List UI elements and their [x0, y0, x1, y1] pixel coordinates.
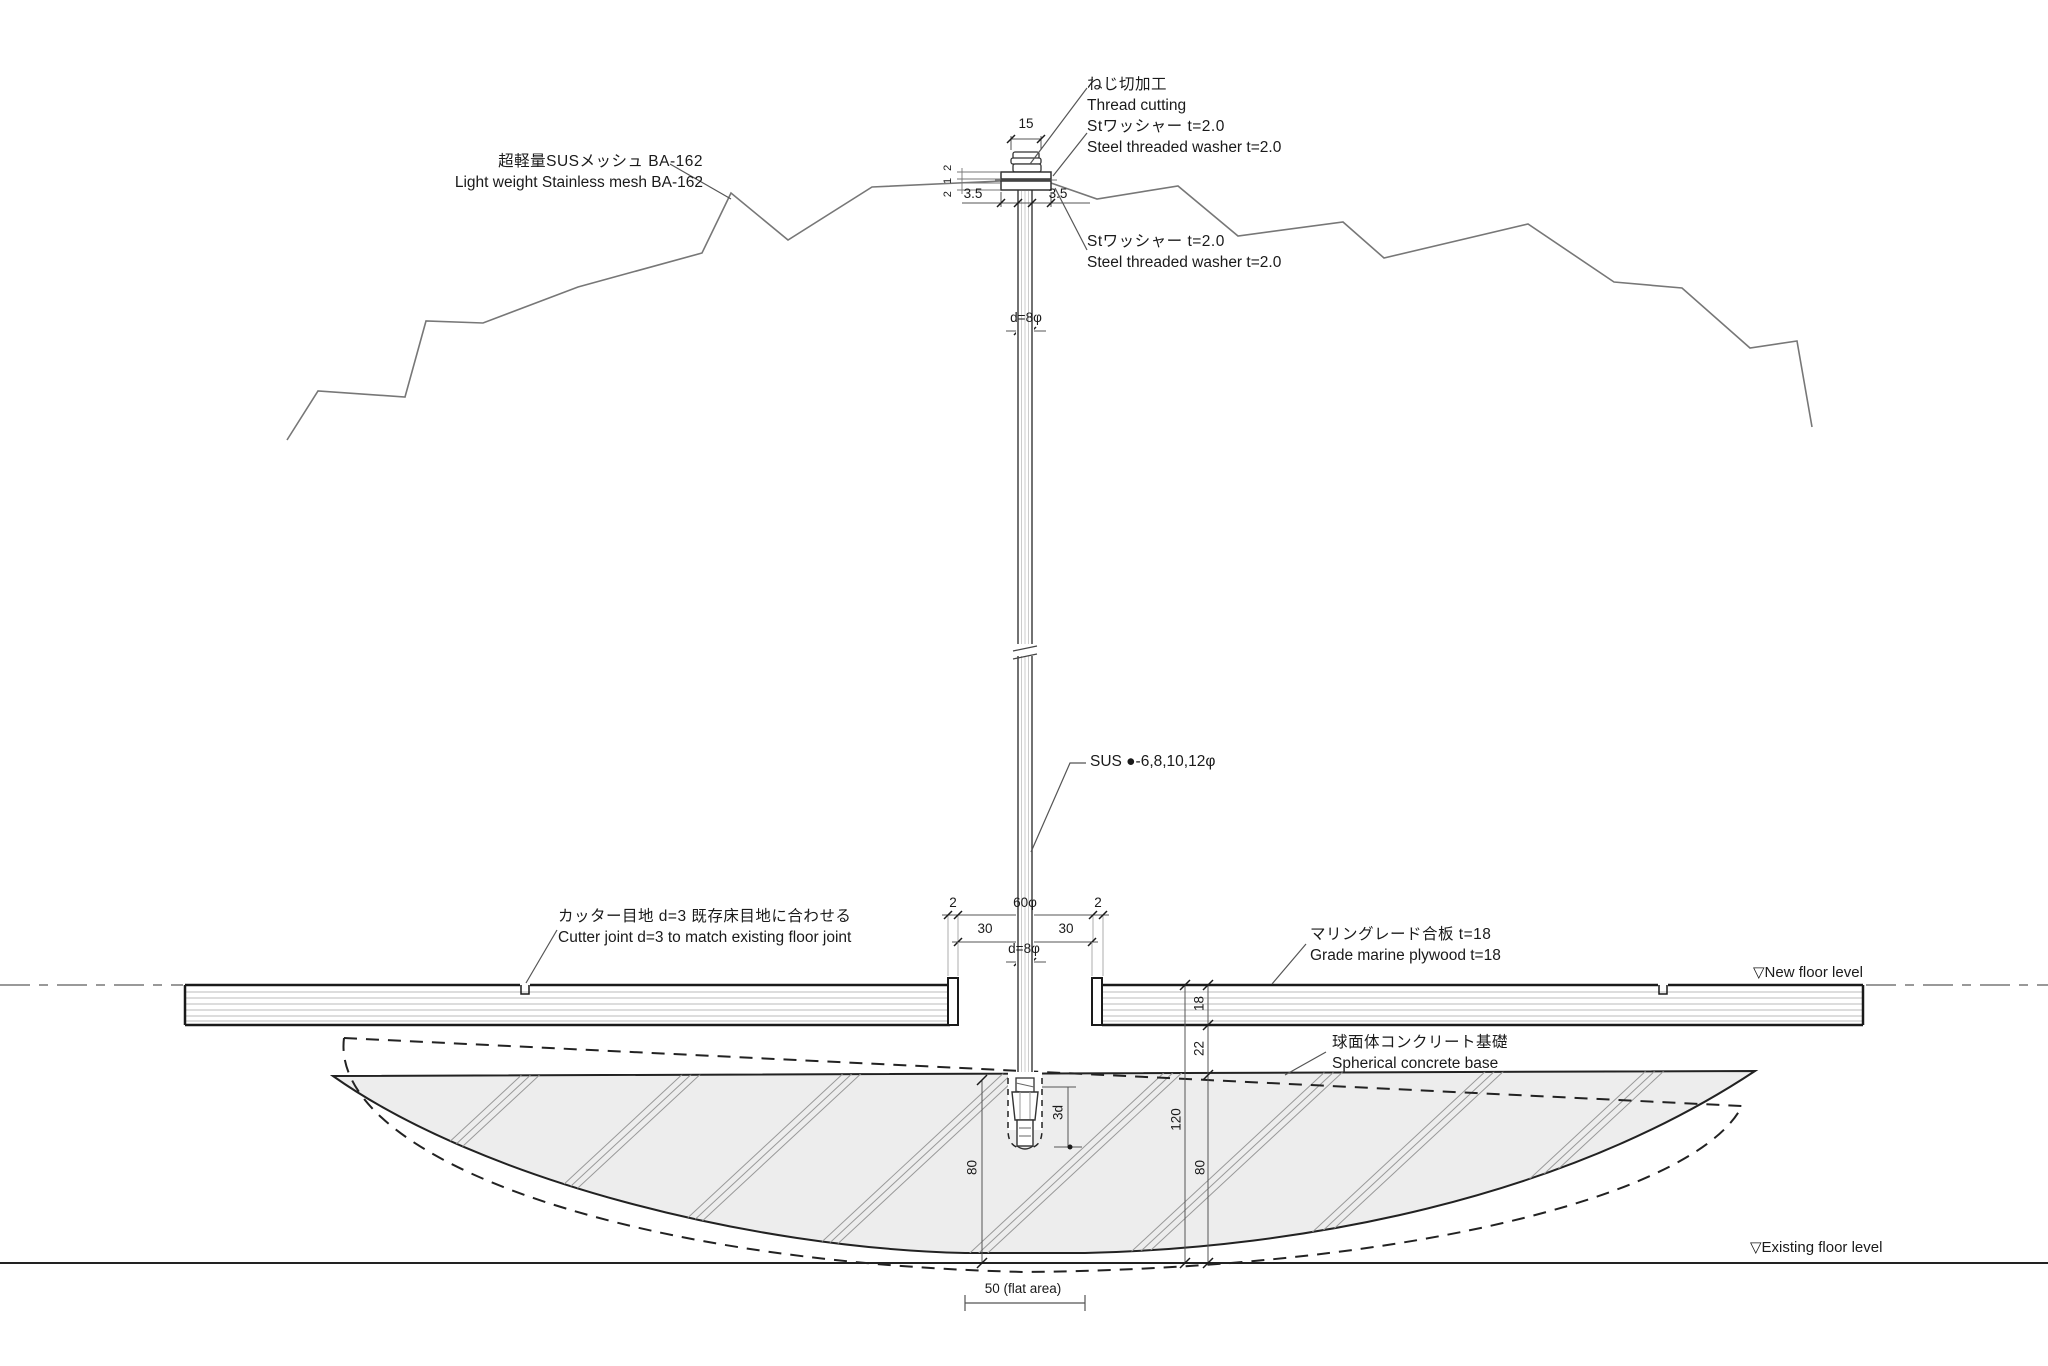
dim-cap-width: 15 [981, 116, 1071, 131]
plank-end-right [1092, 978, 1102, 1025]
label-washer-top-en: Steel threaded washer t=2.0 [1087, 137, 1281, 158]
dim-washer-offset-left: 3.5 [928, 186, 1018, 201]
label-washer-top: Stワッシャー t=2.0 Steel threaded washer t=2.… [1087, 116, 1281, 158]
label-thread-cutting: ねじ切加工 Thread cutting [1087, 74, 1186, 116]
dim-rod-dia-upper: d=8φ [981, 310, 1071, 325]
dim-rod-dia-floor: d=8φ [979, 941, 1069, 956]
label-thread-cutting-en: Thread cutting [1087, 95, 1186, 116]
detail-drawing-canvas [0, 0, 2048, 1366]
label-concrete-base: 球面体コンクリート基礎 Spherical concrete base [1332, 1032, 1508, 1074]
label-mesh-jp: 超軽量SUSメッシュ BA-162 [420, 151, 703, 172]
plank-end-left [948, 978, 958, 1025]
dim-joint-right: 2 [1053, 895, 1143, 910]
floor-plank-left [185, 978, 958, 1025]
label-washer-top-jp: Stワッシャー t=2.0 [1087, 116, 1281, 137]
flat-area-dimension [965, 1295, 1085, 1311]
dim-base-depth-left: 80 [965, 1138, 980, 1198]
label-washer-bottom-jp: Stワッシャー t=2.0 [1087, 231, 1281, 252]
label-new-floor-level: ▽New floor level [1753, 963, 1863, 981]
dim-base-depth-right: 80 [1193, 1138, 1208, 1198]
label-washer-bottom: Stワッシャー t=2.0 Steel threaded washer t=2.… [1087, 231, 1281, 273]
label-cutter-joint-en: Cutter joint d=3 to match existing floor… [558, 927, 851, 948]
dim-washer-offset-right: 3.5 [1013, 186, 1103, 201]
label-existing-floor-level: ▽Existing floor level [1750, 1238, 1882, 1256]
label-plywood-jp: マリングレード合板 t=18 [1310, 924, 1501, 945]
label-plywood: マリングレード合板 t=18 Grade marine plywood t=18 [1310, 924, 1501, 966]
label-concrete-base-en: Spherical concrete base [1332, 1053, 1508, 1074]
label-mesh-en: Light weight Stainless mesh BA-162 [420, 172, 703, 193]
dim-half-span-left: 30 [940, 921, 1030, 936]
dim-overall-depth: 120 [1169, 1090, 1184, 1150]
label-thread-cutting-jp: ねじ切加工 [1087, 74, 1186, 95]
dim-anchor-embed: 3d [1051, 1083, 1066, 1143]
label-cutter-joint-jp: カッター目地 d=3 既存床目地に合わせる [558, 906, 851, 927]
dim-half-span-right: 30 [1021, 921, 1111, 936]
spherical-concrete-base [290, 1030, 1858, 1290]
dim-cavity-gap: 22 [1192, 1019, 1207, 1079]
label-plywood-en: Grade marine plywood t=18 [1310, 945, 1501, 966]
dim-flat-area: 50 (flat area) [943, 1281, 1103, 1296]
label-pole-spec: SUS ●-6,8,10,12φ [1090, 751, 1215, 772]
label-washer-bottom-en: Steel threaded washer t=2.0 [1087, 252, 1281, 273]
label-mesh: 超軽量SUSメッシュ BA-162 Light weight Stainless… [420, 151, 703, 193]
drawing-sheet: ねじ切加工 Thread cutting Stワッシャー t=2.0 Steel… [0, 0, 2048, 1366]
label-cutter-joint: カッター目地 d=3 既存床目地に合わせる Cutter joint d=3 t… [558, 906, 851, 948]
label-concrete-base-jp: 球面体コンクリート基礎 [1332, 1032, 1508, 1053]
